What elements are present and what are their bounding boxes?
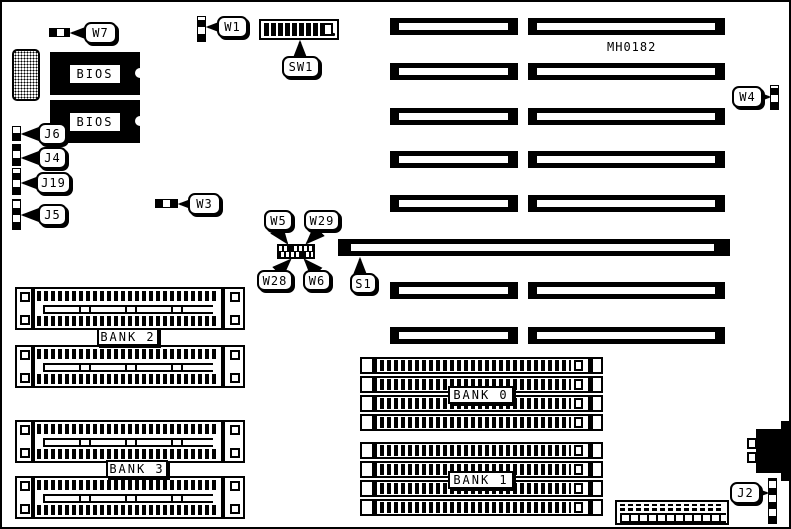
callout-w28: W28 <box>257 270 293 291</box>
callout-w1: W1 <box>217 16 248 38</box>
callout-w7: W7 <box>84 22 117 44</box>
callout-j4: J4 <box>38 147 67 169</box>
callout-w3: W3 <box>188 193 221 215</box>
callout-sw1: SW1 <box>282 56 320 78</box>
callout-arrows <box>2 2 791 529</box>
callout-w29: W29 <box>304 210 340 231</box>
callout-w6: W6 <box>303 270 331 291</box>
callout-j19: J19 <box>36 172 71 194</box>
callout-j5: J5 <box>38 204 67 226</box>
motherboard-diagram: MH0182 BIOS BIOS BANK 2 BANK 3 BANK <box>0 0 791 529</box>
callout-j2: J2 <box>730 482 761 504</box>
callout-s1: S1 <box>350 273 377 294</box>
callout-w4: W4 <box>732 86 763 108</box>
callout-j6: J6 <box>38 123 67 145</box>
callout-w5: W5 <box>264 210 293 231</box>
